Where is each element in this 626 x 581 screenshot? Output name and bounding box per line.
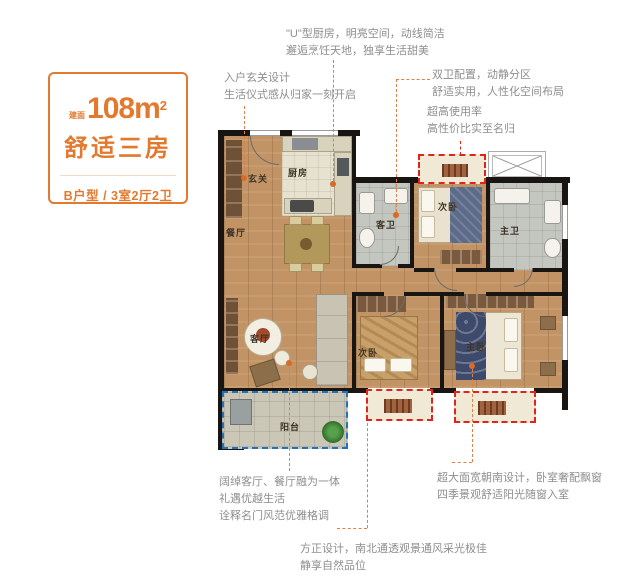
wall-segment bbox=[534, 388, 568, 393]
wall-segment bbox=[352, 292, 356, 392]
leader-bath-vline bbox=[396, 79, 397, 212]
master-bath-counter bbox=[494, 188, 530, 204]
wall-segment bbox=[532, 268, 562, 272]
bay-window-box-bottom-right bbox=[454, 391, 536, 423]
bedroom-bottom-pillow bbox=[390, 358, 412, 372]
area-info-card: 建面108m2 舒适三房 B户型 / 3室2厅2卫 bbox=[48, 72, 188, 204]
annotation-square: 方正设计，南北通透观景通风采光极佳 静享自然品位 bbox=[300, 541, 487, 575]
annotation-living-line3: 诠释名门风范优雅格调 bbox=[219, 508, 340, 525]
dining-chair bbox=[289, 263, 302, 272]
leader-square-hline bbox=[337, 528, 367, 529]
annotation-usage-line1: 超高使用率 bbox=[427, 104, 515, 121]
leader-square-vline bbox=[367, 423, 368, 528]
bay-window-box-top bbox=[418, 154, 486, 184]
card-subtitle: 舒适三房 bbox=[64, 128, 172, 163]
guest-bath-toilet bbox=[359, 228, 375, 248]
floorplan-page: 建面108m2 舒适三房 B户型 / 3室2厅2卫 "U"型厨房，明亮空间，动线… bbox=[0, 0, 626, 581]
shaft-x-icon bbox=[493, 156, 541, 176]
card-divider bbox=[60, 175, 176, 176]
bedroom-top-dresser bbox=[440, 250, 482, 264]
annotation-south-line2: 四季景观舒适阳光随窗入室 bbox=[437, 487, 602, 504]
dining-chair bbox=[311, 263, 324, 272]
bedroom-bottom-pillow bbox=[364, 358, 386, 372]
entry-door-opening bbox=[250, 130, 280, 136]
annotation-kitchen-line2: 邂逅烹饪天地，独享生活甜美 bbox=[286, 43, 445, 60]
shaft-inner-border bbox=[492, 155, 542, 177]
bedroom-top-pillow bbox=[421, 216, 435, 238]
room-label-entry: 玄关 bbox=[248, 172, 268, 185]
leader-kitchen-line bbox=[333, 60, 334, 181]
leader-south-vline bbox=[472, 369, 473, 462]
dining-chair bbox=[289, 216, 302, 225]
bay-window-decor bbox=[478, 401, 506, 415]
master-bed-pillow bbox=[504, 348, 518, 372]
leader-bath-dot bbox=[393, 212, 399, 218]
bedroom-top-blanket bbox=[450, 187, 482, 243]
leader-living-line bbox=[289, 367, 290, 471]
annotation-bathrooms-line1: 双卫配置，动静分区 bbox=[432, 67, 564, 84]
leader-usage-line bbox=[460, 141, 461, 155]
area-line: 建面108m2 bbox=[69, 94, 167, 124]
room-label-balcony: 阳台 bbox=[280, 420, 300, 433]
kitchen-stove bbox=[290, 200, 314, 212]
annotation-square-line1: 方正设计，南北通透观景通风采光极佳 bbox=[300, 541, 487, 558]
annotation-square-line2: 静享自然品位 bbox=[300, 558, 487, 575]
annotation-entry: 入户玄关设计 生活仪式感从归家一刻开启 bbox=[224, 70, 356, 104]
area-value: 108m bbox=[87, 94, 160, 124]
room-label-guest-bath: 客卫 bbox=[376, 218, 396, 231]
kitchen-window bbox=[292, 130, 338, 136]
leader-living-dot bbox=[286, 360, 292, 366]
annotation-usage: 超高使用率 高性价比实至名归 bbox=[427, 104, 515, 138]
bay-window-box-bottom-left bbox=[366, 389, 433, 421]
floor-lamp bbox=[302, 364, 318, 380]
kitchen-fridge bbox=[337, 158, 349, 176]
wall-segment bbox=[218, 130, 360, 136]
annotation-living: 阔绰客厅、餐厅融为一体 礼遇优越生活 诠释名门风范优雅格调 bbox=[219, 474, 340, 525]
leader-south-hline bbox=[452, 462, 472, 463]
unit-type-line: B户型 / 3室2厅2卫 bbox=[64, 185, 173, 204]
wall-segment bbox=[486, 292, 562, 296]
tv-cabinet bbox=[226, 298, 238, 374]
annotation-entry-line1: 入户玄关设计 bbox=[224, 70, 356, 87]
room-label-living: 客厅 bbox=[250, 332, 270, 345]
annotation-south: 超大面宽朝南设计，卧室奢配飘窗 四季景观舒适阳光随窗入室 bbox=[437, 470, 602, 504]
annotation-kitchen: "U"型厨房，明亮空间，动线简洁 邂逅烹饪天地，独享生活甜美 bbox=[286, 26, 445, 60]
master-bath-window bbox=[562, 205, 568, 239]
leader-entry-dot bbox=[241, 175, 247, 181]
annotation-bathrooms: 双卫配置，动静分区 舒适实用，人性化空间布局 bbox=[432, 67, 564, 101]
room-label-bedroom-bottom: 次卧 bbox=[358, 346, 378, 359]
entry-wardrobe bbox=[226, 140, 242, 218]
balcony-cabinet bbox=[230, 399, 252, 425]
master-bedroom-window bbox=[562, 316, 568, 360]
balcony-plant bbox=[322, 421, 344, 443]
master-bench bbox=[444, 330, 456, 370]
annotation-living-line2: 礼遇优越生活 bbox=[219, 491, 340, 508]
room-label-bedroom-top: 次卧 bbox=[438, 200, 458, 213]
wall-segment bbox=[490, 268, 514, 272]
master-wardrobe bbox=[446, 294, 534, 308]
master-nightstand bbox=[540, 316, 556, 330]
sofa bbox=[316, 294, 348, 386]
wall-segment bbox=[404, 292, 464, 296]
annotation-living-line1: 阔绰客厅、餐厅融为一体 bbox=[219, 474, 340, 491]
annotation-usage-line2: 高性价比实至名归 bbox=[427, 121, 515, 138]
master-bath-sink bbox=[544, 200, 561, 224]
leader-bath-hline bbox=[396, 79, 430, 80]
leader-entry-line bbox=[244, 106, 245, 174]
bay-window-decor bbox=[442, 164, 468, 177]
leader-kitchen-dot bbox=[330, 181, 336, 187]
master-nightstand bbox=[540, 362, 556, 376]
dining-chair bbox=[311, 216, 324, 225]
area-prefix: 建面 bbox=[69, 112, 85, 120]
area-superscript: 2 bbox=[160, 99, 167, 112]
wall-segment bbox=[456, 268, 486, 272]
annotation-kitchen-line1: "U"型厨房，明亮空间，动线简洁 bbox=[286, 26, 445, 43]
bedroom-top-pillow bbox=[421, 190, 435, 212]
dining-centerpiece bbox=[300, 238, 312, 250]
guest-bath-sink bbox=[359, 192, 375, 214]
annotation-bathrooms-line2: 舒适实用，人性化空间布局 bbox=[432, 84, 564, 101]
wall-segment bbox=[414, 268, 434, 272]
room-label-dining: 餐厅 bbox=[226, 226, 246, 239]
wall-segment bbox=[483, 177, 570, 183]
room-label-master-bath: 主卫 bbox=[500, 224, 520, 237]
room-label-kitchen: 厨房 bbox=[288, 166, 308, 179]
wall-segment bbox=[356, 264, 382, 268]
annotation-entry-line2: 生活仪式感从归家一刻开启 bbox=[224, 87, 356, 104]
master-bed-pillow bbox=[504, 318, 518, 342]
wall-segment bbox=[440, 292, 444, 392]
wall-segment bbox=[398, 264, 414, 268]
kitchen-sink bbox=[292, 138, 318, 150]
master-bath-toilet bbox=[544, 238, 561, 258]
room-label-master-bedroom: 主卧 bbox=[466, 340, 486, 353]
wall-segment bbox=[352, 134, 356, 268]
wall-segment bbox=[410, 183, 414, 268]
wall-segment bbox=[356, 292, 384, 296]
bay-window-decor bbox=[384, 399, 412, 413]
wall-segment bbox=[486, 183, 490, 272]
annotation-south-line1: 超大面宽朝南设计，卧室奢配飘窗 bbox=[437, 470, 602, 487]
